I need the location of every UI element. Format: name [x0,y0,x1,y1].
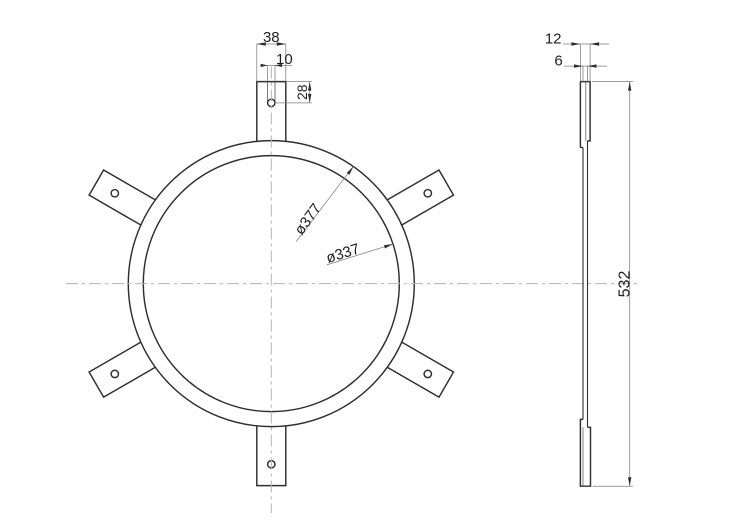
svg-text:ø337: ø337 [324,240,362,266]
svg-text:28: 28 [294,84,310,100]
svg-text:532: 532 [616,271,633,298]
svg-text:12: 12 [545,30,562,47]
svg-text:10: 10 [276,51,293,68]
svg-text:6: 6 [554,53,562,70]
svg-text:ø377: ø377 [291,201,325,239]
svg-text:38: 38 [263,29,280,46]
